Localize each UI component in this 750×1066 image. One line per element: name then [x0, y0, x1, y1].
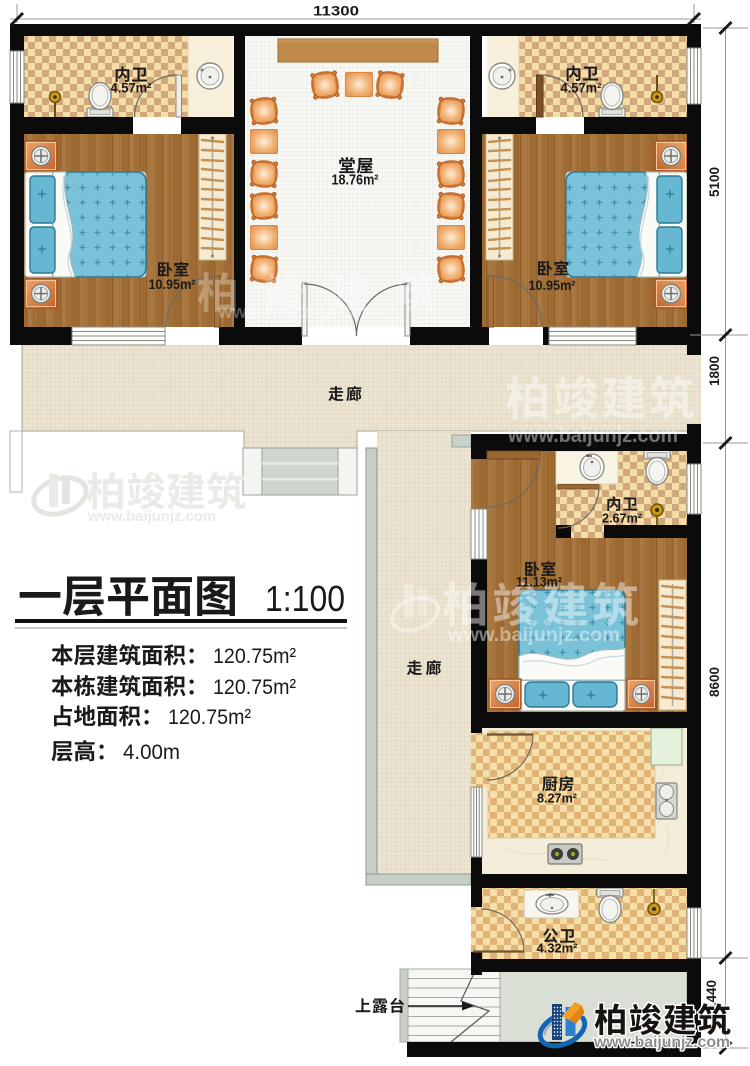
svg-text:www.baijunjz.com: www.baijunjz.com — [507, 424, 678, 447]
svg-text:www.baijunjz.com: www.baijunjz.com — [593, 1034, 730, 1051]
svg-text:1800: 1800 — [707, 356, 722, 386]
svg-text:1:100: 1:100 — [265, 578, 345, 619]
svg-text:18.76m²: 18.76m² — [332, 173, 379, 189]
svg-text:4.32m²: 4.32m² — [537, 941, 579, 956]
svg-text:10.95m²: 10.95m² — [529, 277, 576, 293]
svg-text:5100: 5100 — [707, 167, 722, 197]
svg-text:4.57m²: 4.57m² — [111, 81, 152, 96]
svg-text:120.75m²: 120.75m² — [213, 675, 296, 699]
svg-text:4.00m: 4.00m — [123, 740, 180, 764]
svg-text:8.27m²: 8.27m² — [537, 791, 578, 806]
svg-text:www.baijunjz.com: www.baijunjz.com — [87, 508, 216, 525]
svg-text:11.13m²: 11.13m² — [516, 575, 562, 590]
svg-text:4.57m²: 4.57m² — [561, 81, 602, 96]
svg-text:11300: 11300 — [313, 4, 359, 19]
svg-text:120.75m²: 120.75m² — [168, 705, 251, 729]
svg-text:www.baijunjz.com: www.baijunjz.com — [217, 302, 378, 322]
svg-text:8600: 8600 — [707, 667, 722, 697]
svg-text:120.75m²: 120.75m² — [213, 644, 296, 668]
svg-text:2.67m²: 2.67m² — [602, 511, 643, 526]
svg-text:10.95m²: 10.95m² — [149, 276, 196, 292]
svg-text:www.baijunjz.com: www.baijunjz.com — [447, 625, 620, 646]
